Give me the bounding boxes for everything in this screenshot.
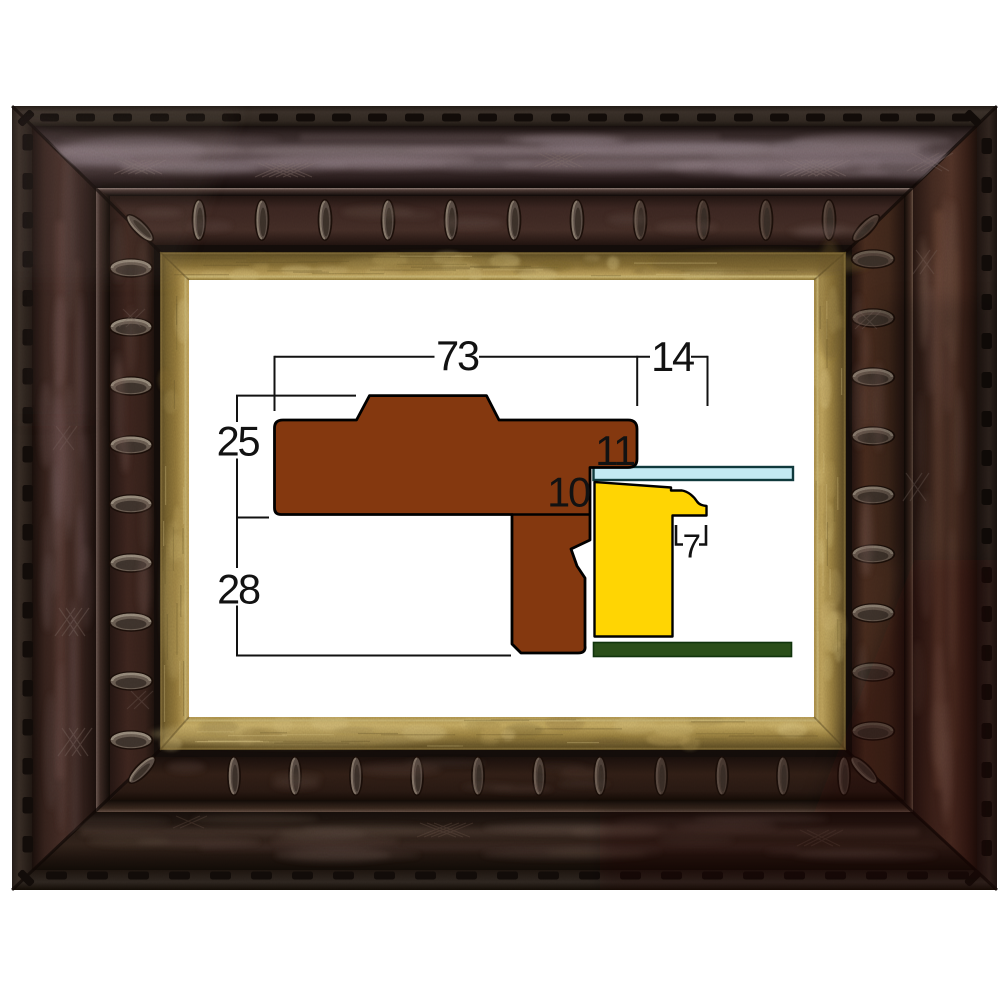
svg-text:25: 25 bbox=[217, 418, 260, 465]
svg-text:7: 7 bbox=[683, 528, 700, 565]
svg-text:11: 11 bbox=[595, 427, 635, 474]
svg-text:28: 28 bbox=[217, 566, 260, 613]
svg-text:14: 14 bbox=[651, 333, 694, 380]
svg-text:73: 73 bbox=[436, 332, 479, 379]
svg-text:10: 10 bbox=[547, 469, 590, 516]
